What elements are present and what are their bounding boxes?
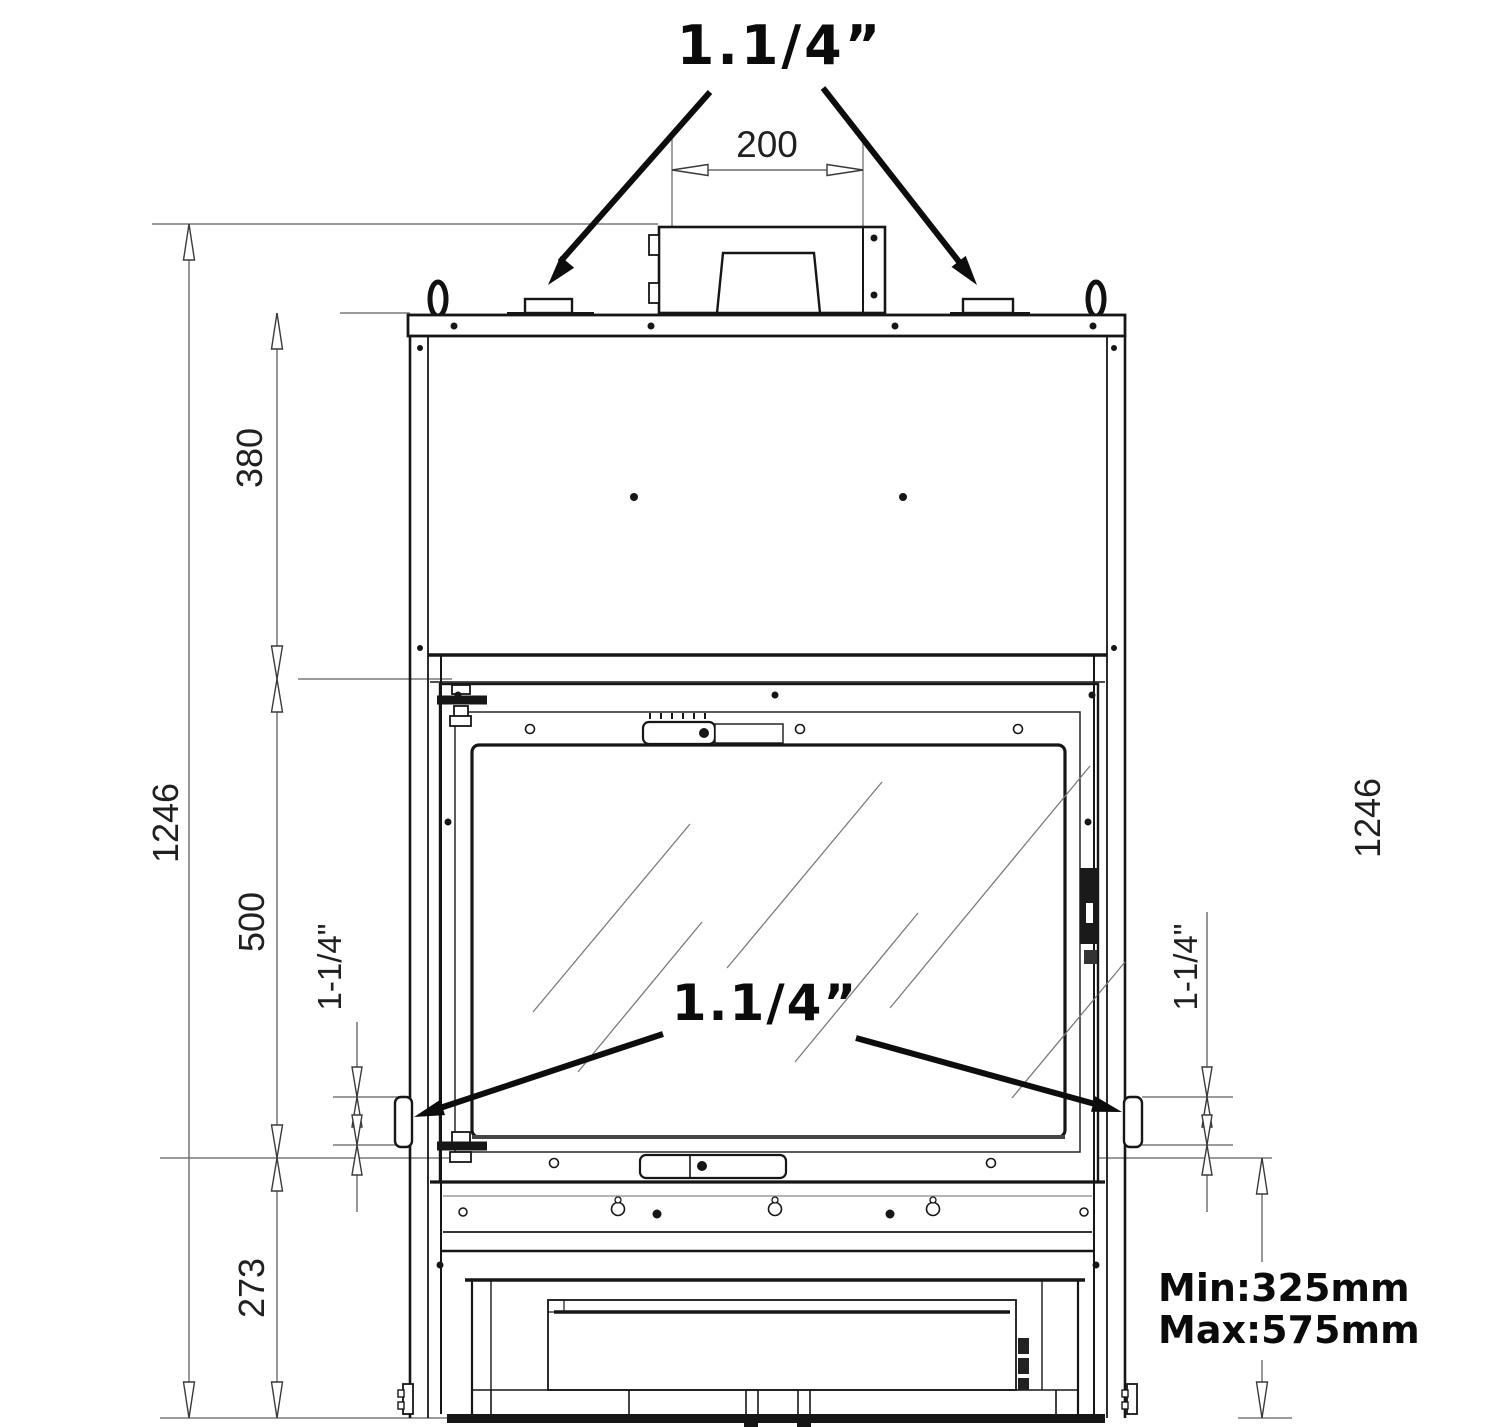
- dim-door-section-height: 500: [230, 832, 274, 1012]
- dim-upper-section-height: 380: [228, 368, 272, 548]
- dim-base-section-height: 273: [230, 1198, 274, 1378]
- fireplace-front-elevation: [0, 0, 1500, 1427]
- dim-right-pipe-size: 1-1/4": [1164, 877, 1208, 1057]
- top-connection-size-label: 1.1/4”: [600, 14, 960, 77]
- clearance-min-label: Min:325mm: [1158, 1266, 1410, 1310]
- dim-left-pipe-size: 1-1/4": [308, 877, 352, 1057]
- side-connection-size-label: 1.1/4”: [585, 974, 945, 1032]
- technical-drawing-page: 1.1/4” 200 1246 380 500 273 1-1/4" 1-1/4…: [0, 0, 1500, 1427]
- dim-flue-width: 200: [697, 124, 837, 166]
- dim-total-height-right: 1246: [1346, 728, 1390, 908]
- clearance-max-label: Max:575mm: [1158, 1308, 1420, 1352]
- dim-total-height-left: 1246: [144, 733, 188, 913]
- screw-band: [459, 1197, 1088, 1219]
- base-compartment: [465, 1280, 1085, 1414]
- door-glass: [472, 745, 1065, 1137]
- flue-collar: [649, 227, 885, 313]
